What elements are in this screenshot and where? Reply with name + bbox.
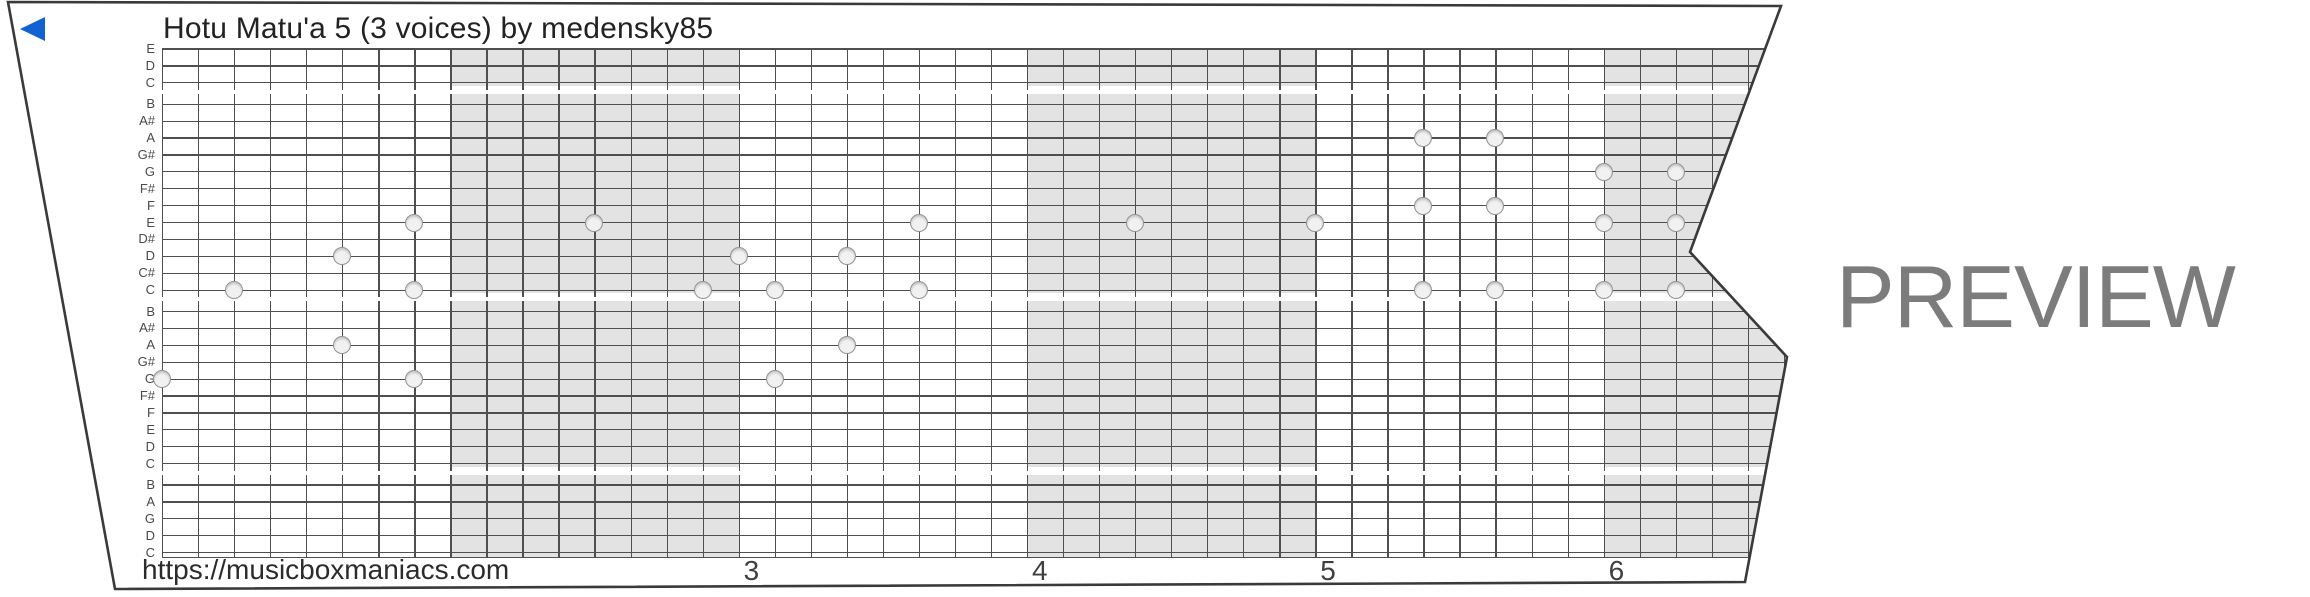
row-label: E (95, 422, 155, 438)
beat-line (342, 49, 343, 86)
beat-line (775, 475, 776, 558)
octave-gap-tick (1315, 293, 1316, 297)
octave-gap-tick (162, 467, 163, 471)
beat-line (486, 475, 487, 558)
beat-line (1495, 475, 1496, 558)
octave-gap-tick (991, 467, 992, 471)
octave-gap-tick (883, 467, 884, 471)
beat-line (414, 94, 415, 293)
octave-gap-tick (486, 86, 487, 90)
beat-line (1604, 475, 1605, 558)
beat-line (306, 301, 307, 467)
beat-line (919, 301, 920, 467)
beat-line (1243, 301, 1244, 467)
octave-gap-tick (955, 467, 956, 471)
octave-gap-tick (1568, 293, 1569, 297)
octave-gap-tick (594, 293, 595, 297)
row-label: F (95, 198, 155, 214)
row-label: G (95, 164, 155, 180)
beat-line (198, 475, 199, 558)
note-hole (1595, 281, 1613, 299)
note-hole (694, 281, 712, 299)
beat-line (919, 475, 920, 558)
octave-gap-tick (1568, 467, 1569, 471)
beat-line (1748, 94, 1749, 293)
beat-line (1027, 475, 1028, 558)
octave-gap-tick (1820, 86, 1821, 90)
beat-line (883, 301, 884, 467)
octave-gap-tick (1099, 86, 1100, 90)
beat-line (739, 301, 740, 467)
octave-gap-tick (1387, 293, 1388, 297)
beat-line (1495, 301, 1496, 467)
octave-gap-tick (739, 467, 740, 471)
beat-line (1423, 301, 1424, 467)
row-label: B (95, 96, 155, 112)
note-hole (405, 370, 423, 388)
note-hole (1595, 214, 1613, 232)
octave-gap-tick (450, 293, 451, 297)
octave-gap-tick (558, 86, 559, 90)
note-hole (1595, 163, 1613, 181)
octave-gap-tick (1676, 467, 1677, 471)
octave-gap-tick (739, 86, 740, 90)
note-hole (910, 281, 928, 299)
octave-gap-tick (1207, 467, 1208, 471)
beat-line (1387, 94, 1388, 293)
beat-line (1532, 49, 1533, 86)
play-icon[interactable] (20, 17, 45, 41)
beat-line (1784, 49, 1785, 86)
octave-gap-tick (1568, 86, 1569, 90)
octave-gap-tick (486, 467, 487, 471)
beat-line (522, 49, 523, 86)
octave-gap-tick (1315, 86, 1316, 90)
beat-line (1279, 49, 1280, 86)
octave-gap-tick (1279, 467, 1280, 471)
octave-gap-tick (1676, 86, 1677, 90)
beat-line (270, 49, 271, 86)
octave-gap-tick (1784, 293, 1785, 297)
octave-gap-tick (1640, 86, 1641, 90)
octave-gap-tick (1820, 467, 1821, 471)
octave-gap-tick (1784, 86, 1785, 90)
octave-gap-tick (306, 86, 307, 90)
beat-line (1351, 49, 1352, 86)
beat-line (1063, 94, 1064, 293)
beat-line (1207, 301, 1208, 467)
octave-gap-tick (991, 293, 992, 297)
beat-line (1135, 301, 1136, 467)
beat-line (594, 475, 595, 558)
octave-gap-tick (1351, 293, 1352, 297)
beat-line (1640, 301, 1641, 467)
octave-gap-tick (450, 467, 451, 471)
beat-line (1784, 94, 1785, 293)
beat-line (414, 49, 415, 86)
row-label: F (95, 405, 155, 421)
beat-line (1784, 475, 1785, 558)
row-label: A# (95, 320, 155, 336)
beat-line (1532, 94, 1533, 293)
beat-line (1207, 475, 1208, 558)
beat-line (234, 301, 235, 467)
beat-line (775, 49, 776, 86)
octave-gap-tick (811, 293, 812, 297)
beat-line (558, 475, 559, 558)
octave-gap-tick (162, 293, 163, 297)
beat-line (306, 94, 307, 293)
note-hole (1667, 214, 1685, 232)
beat-line (1640, 94, 1641, 293)
beat-line (378, 94, 379, 293)
octave-gap-tick (919, 467, 920, 471)
octave-gap-tick (1532, 467, 1533, 471)
row-label: C (95, 282, 155, 298)
octave-gap-tick (1063, 293, 1064, 297)
row-label: B (95, 477, 155, 493)
octave-gap-tick (775, 86, 776, 90)
beat-line (955, 49, 956, 86)
note-hole (910, 214, 928, 232)
music-strip-preview: Hotu Matu'a 5 (3 voices) by medensky85 E… (0, 0, 2310, 597)
beat-line (739, 49, 740, 86)
beat-line (1315, 94, 1316, 293)
beat-line (1495, 94, 1496, 293)
octave-gap-tick (378, 86, 379, 90)
beat-line (883, 475, 884, 558)
octave-gap-tick (342, 86, 343, 90)
beat-line (162, 94, 163, 293)
note-hole (405, 214, 423, 232)
beat-line (594, 49, 595, 86)
row-label: A (95, 130, 155, 146)
preview-watermark: PREVIEW (1836, 246, 2235, 348)
beat-line (270, 475, 271, 558)
beat-line (739, 475, 740, 558)
beat-line (1387, 301, 1388, 467)
octave-gap-tick (1604, 86, 1605, 90)
octave-gap-tick (1387, 467, 1388, 471)
beat-line (1892, 475, 1893, 558)
row-label: C (95, 75, 155, 91)
beat-line (1207, 94, 1208, 293)
beat-line (486, 49, 487, 86)
octave-gap-tick (1748, 467, 1749, 471)
octave-gap-tick (667, 86, 668, 90)
beat-line (1279, 475, 1280, 558)
octave-gap-tick (270, 293, 271, 297)
beat-line (378, 301, 379, 467)
beat-line (811, 475, 812, 558)
row-label: D (95, 439, 155, 455)
octave-gap-tick (631, 293, 632, 297)
octave-gap-tick (1063, 86, 1064, 90)
octave-gap-tick (522, 467, 523, 471)
octave-gap-tick (631, 467, 632, 471)
beat-line (1676, 475, 1677, 558)
octave-gap-tick (486, 293, 487, 297)
beat-line (378, 49, 379, 86)
octave-gap-tick (1279, 86, 1280, 90)
beat-line (1423, 94, 1424, 293)
beat-line (1676, 49, 1677, 86)
octave-gap-tick (450, 86, 451, 90)
row-label: C (95, 456, 155, 472)
beat-line (1315, 301, 1316, 467)
octave-gap-tick (1640, 467, 1641, 471)
octave-gap-tick (198, 86, 199, 90)
site-url: https://musicboxmaniacs.com (142, 554, 509, 586)
row-label: E (95, 41, 155, 57)
beat-line (1135, 49, 1136, 86)
octave-gap-tick (1784, 467, 1785, 471)
octave-gap-tick (1892, 86, 1893, 90)
beat-line (1748, 475, 1749, 558)
beat-line (1243, 475, 1244, 558)
beat-line (234, 475, 235, 558)
beat-line (1748, 49, 1749, 86)
beat-line (1748, 301, 1749, 467)
beat-line (1820, 475, 1821, 558)
octave-gap-tick (1459, 86, 1460, 90)
beat-line (1243, 49, 1244, 86)
row-label: B (95, 304, 155, 320)
octave-gap-tick (1171, 293, 1172, 297)
beat-line (522, 301, 523, 467)
beat-line (270, 301, 271, 467)
beat-line (1712, 301, 1713, 467)
beat-line (1712, 49, 1713, 86)
beat-line (775, 94, 776, 293)
beat-line (1171, 475, 1172, 558)
beat-line (1820, 301, 1821, 467)
row-label: G (95, 511, 155, 527)
beat-line (1820, 94, 1821, 293)
beat-line (1315, 49, 1316, 86)
octave-gap-tick (1640, 293, 1641, 297)
beat-line (1171, 94, 1172, 293)
octave-gap-tick (1315, 467, 1316, 471)
beat-line (991, 475, 992, 558)
beat-line (883, 94, 884, 293)
beat-line (1135, 475, 1136, 558)
beat-line (1099, 301, 1100, 467)
octave-gap-tick (306, 467, 307, 471)
octave-gap-tick (522, 86, 523, 90)
row-label: F# (95, 181, 155, 197)
octave-gap-tick (1099, 467, 1100, 471)
beat-line (198, 301, 199, 467)
beat-line (1171, 301, 1172, 467)
octave-gap-tick (1495, 467, 1496, 471)
beat-line (631, 475, 632, 558)
octave-gap-tick (1387, 86, 1388, 90)
beat-line (1387, 475, 1388, 558)
octave-gap-tick (703, 467, 704, 471)
octave-gap-tick (1495, 86, 1496, 90)
octave-gap-tick (594, 86, 595, 90)
beat-line (1063, 475, 1064, 558)
note-hole (153, 370, 171, 388)
octave-gap-tick (522, 293, 523, 297)
beat-line (919, 49, 920, 86)
octave-gap-tick (558, 293, 559, 297)
beat-line (1712, 475, 1713, 558)
octave-gap-tick (198, 467, 199, 471)
beat-line (1279, 94, 1280, 293)
octave-gap-tick (1892, 467, 1893, 471)
beat-line (955, 94, 956, 293)
beat-line (558, 49, 559, 86)
octave-gap-tick (1243, 467, 1244, 471)
beat-line (1568, 94, 1569, 293)
octave-gap-tick (811, 467, 812, 471)
beat-line (667, 49, 668, 86)
beat-line (667, 475, 668, 558)
measure-number: 6 (1609, 555, 1625, 587)
beat-line (1315, 475, 1316, 558)
beat-line (1279, 301, 1280, 467)
beat-line (1568, 301, 1569, 467)
octave-gap-tick (1423, 86, 1424, 90)
beat-line (955, 301, 956, 467)
beat-line (450, 301, 451, 467)
octave-gap-tick (1027, 467, 1028, 471)
beat-line (1135, 94, 1136, 293)
octave-gap-tick (378, 467, 379, 471)
beat-line (1676, 301, 1677, 467)
octave-gap-tick (1856, 467, 1857, 471)
octave-gap-tick (1027, 293, 1028, 297)
beat-line (1099, 49, 1100, 86)
octave-gap-tick (1532, 293, 1533, 297)
octave-gap-tick (847, 467, 848, 471)
note-hole (1667, 163, 1685, 181)
beat-line (1712, 94, 1713, 293)
beat-line (1459, 49, 1460, 86)
octave-gap-tick (1099, 293, 1100, 297)
octave-gap-tick (1243, 86, 1244, 90)
octave-gap-tick (1207, 293, 1208, 297)
beat-line (1027, 94, 1028, 293)
beat-line (1640, 475, 1641, 558)
beat-line (1459, 475, 1460, 558)
beat-line (1171, 49, 1172, 86)
octave-gap-tick (739, 293, 740, 297)
beat-line (1604, 49, 1605, 86)
beat-line (1604, 301, 1605, 467)
octave-gap-tick (667, 293, 668, 297)
beat-line (631, 49, 632, 86)
beat-line (1423, 475, 1424, 558)
note-hole (1486, 197, 1504, 215)
beat-line (342, 301, 343, 467)
beat-line (1568, 49, 1569, 86)
octave-gap-tick (1748, 293, 1749, 297)
octave-gap-tick (162, 86, 163, 90)
octave-gap-tick (919, 86, 920, 90)
octave-gap-tick (1279, 293, 1280, 297)
measure-number: 4 (1032, 555, 1048, 587)
beat-line (1099, 475, 1100, 558)
octave-gap-tick (1712, 467, 1713, 471)
octave-gap-tick (1135, 293, 1136, 297)
octave-gap-tick (883, 86, 884, 90)
octave-gap-tick (955, 293, 956, 297)
beat-line (667, 94, 668, 293)
octave-gap-tick (1712, 86, 1713, 90)
octave-gap-tick (1712, 293, 1713, 297)
note-hole (1414, 197, 1432, 215)
beat-line (1027, 301, 1028, 467)
beat-line (1676, 94, 1677, 293)
beat-line (1207, 49, 1208, 86)
octave-gap-tick (1423, 467, 1424, 471)
beat-line (991, 49, 992, 86)
beat-line (486, 94, 487, 293)
octave-gap-tick (1856, 86, 1857, 90)
note-hole (730, 247, 748, 265)
octave-gap-tick (847, 86, 848, 90)
row-label: G# (95, 147, 155, 163)
beat-line (1892, 49, 1893, 86)
octave-gap-tick (1748, 86, 1749, 90)
beat-line (558, 94, 559, 293)
beat-line (594, 301, 595, 467)
note-hole (1667, 281, 1685, 299)
octave-gap-tick (1207, 86, 1208, 90)
beat-line (883, 49, 884, 86)
beat-line (198, 94, 199, 293)
octave-gap-tick (883, 293, 884, 297)
measure-number: 3 (744, 555, 760, 587)
octave-gap-tick (1459, 293, 1460, 297)
beat-line (1856, 49, 1857, 86)
octave-gap-tick (270, 86, 271, 90)
octave-gap-tick (847, 293, 848, 297)
beat-line (631, 301, 632, 467)
row-label: G (95, 371, 155, 387)
beat-line (1640, 49, 1641, 86)
octave-gap-tick (991, 86, 992, 90)
octave-gap-tick (378, 293, 379, 297)
beat-line (991, 94, 992, 293)
octave-gap-tick (1532, 86, 1533, 90)
row-label: D (95, 528, 155, 544)
note-hole (838, 336, 856, 354)
row-label: E (95, 215, 155, 231)
row-label: A# (95, 113, 155, 129)
octave-gap-tick (1171, 86, 1172, 90)
beat-line (450, 94, 451, 293)
beat-line (1063, 49, 1064, 86)
note-hole (333, 247, 351, 265)
beat-line (1243, 94, 1244, 293)
note-hole (1126, 214, 1144, 232)
beat-line (1820, 49, 1821, 86)
beat-line (594, 94, 595, 293)
beat-line (1784, 301, 1785, 467)
note-hole (1414, 129, 1432, 147)
beat-line (522, 94, 523, 293)
note-hole (766, 370, 784, 388)
octave-gap-tick (1820, 293, 1821, 297)
beat-line (558, 301, 559, 467)
octave-gap-tick (342, 467, 343, 471)
beat-line (1532, 301, 1533, 467)
octave-gap-tick (1135, 467, 1136, 471)
